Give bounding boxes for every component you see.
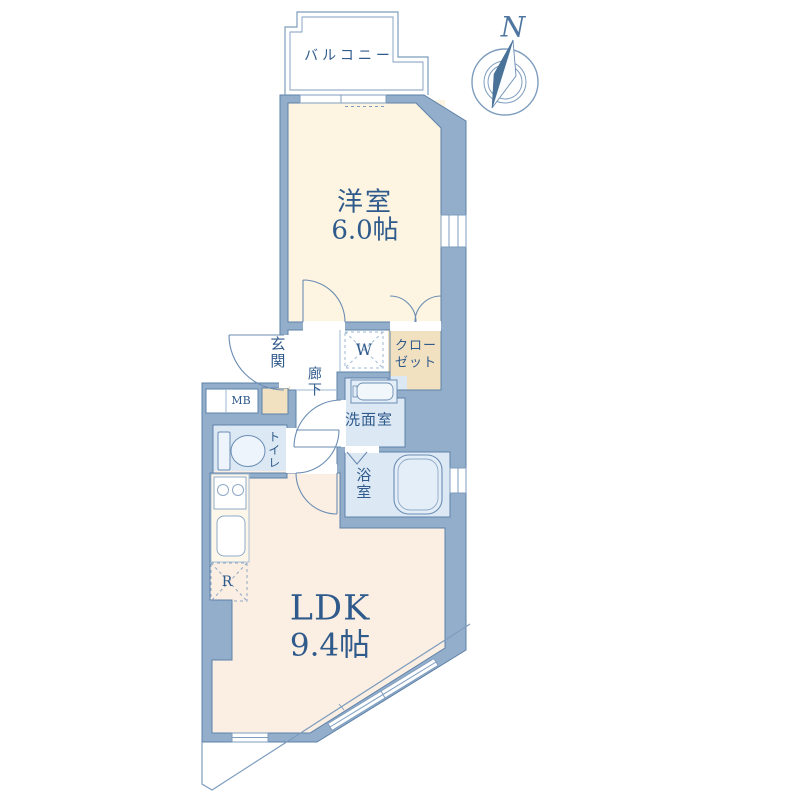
western-room-name: 洋室	[337, 188, 393, 217]
hallway-label: 廊下	[305, 366, 321, 398]
washer-space-label: W	[356, 341, 372, 359]
compass-icon	[472, 40, 538, 115]
ldk-name: LDK	[290, 589, 370, 628]
washroom-door-arc	[294, 400, 341, 447]
toilet-label: トイレ	[266, 431, 279, 470]
western-room-door-gap	[303, 321, 345, 331]
western-room-top-window	[300, 95, 386, 103]
bathroom-label: 浴室	[355, 467, 372, 501]
washroom-label: 洗面室	[345, 412, 393, 429]
closet-door-gap	[390, 321, 441, 331]
floor-plan-drawing	[0, 0, 800, 800]
western-room-size: 6.0帖	[331, 216, 398, 245]
balcony-label: バルコニー	[304, 49, 394, 65]
toilet-tank-icon	[218, 432, 230, 470]
meter-box-label: MB	[231, 395, 250, 407]
ldk-size: 9.4帖	[290, 629, 370, 664]
toilet-bowl-icon	[231, 436, 265, 467]
refrigerator-space-label: R	[222, 575, 233, 591]
stove-burner	[218, 485, 229, 496]
stove-burner	[233, 485, 244, 496]
entrance-label: 玄関	[269, 336, 286, 370]
bathtub-icon	[394, 455, 442, 514]
compass-north-label: N	[501, 11, 526, 42]
washbasin-faucet	[353, 386, 357, 397]
sink-icon	[217, 516, 245, 556]
floor-plan-canvas: バルコニー 洋室 6.0帖 クロー ゼット W 玄関 廊下 MB トイレ 洗面室…	[0, 0, 800, 800]
closet-label-line2: ゼット	[395, 357, 437, 372]
western-room-side-window	[441, 215, 466, 247]
washbasin-bowl	[357, 383, 393, 400]
shoe-box-floor	[260, 386, 290, 416]
bathroom-door-gap	[345, 446, 379, 453]
closet-label-line1: クロー	[395, 340, 437, 355]
